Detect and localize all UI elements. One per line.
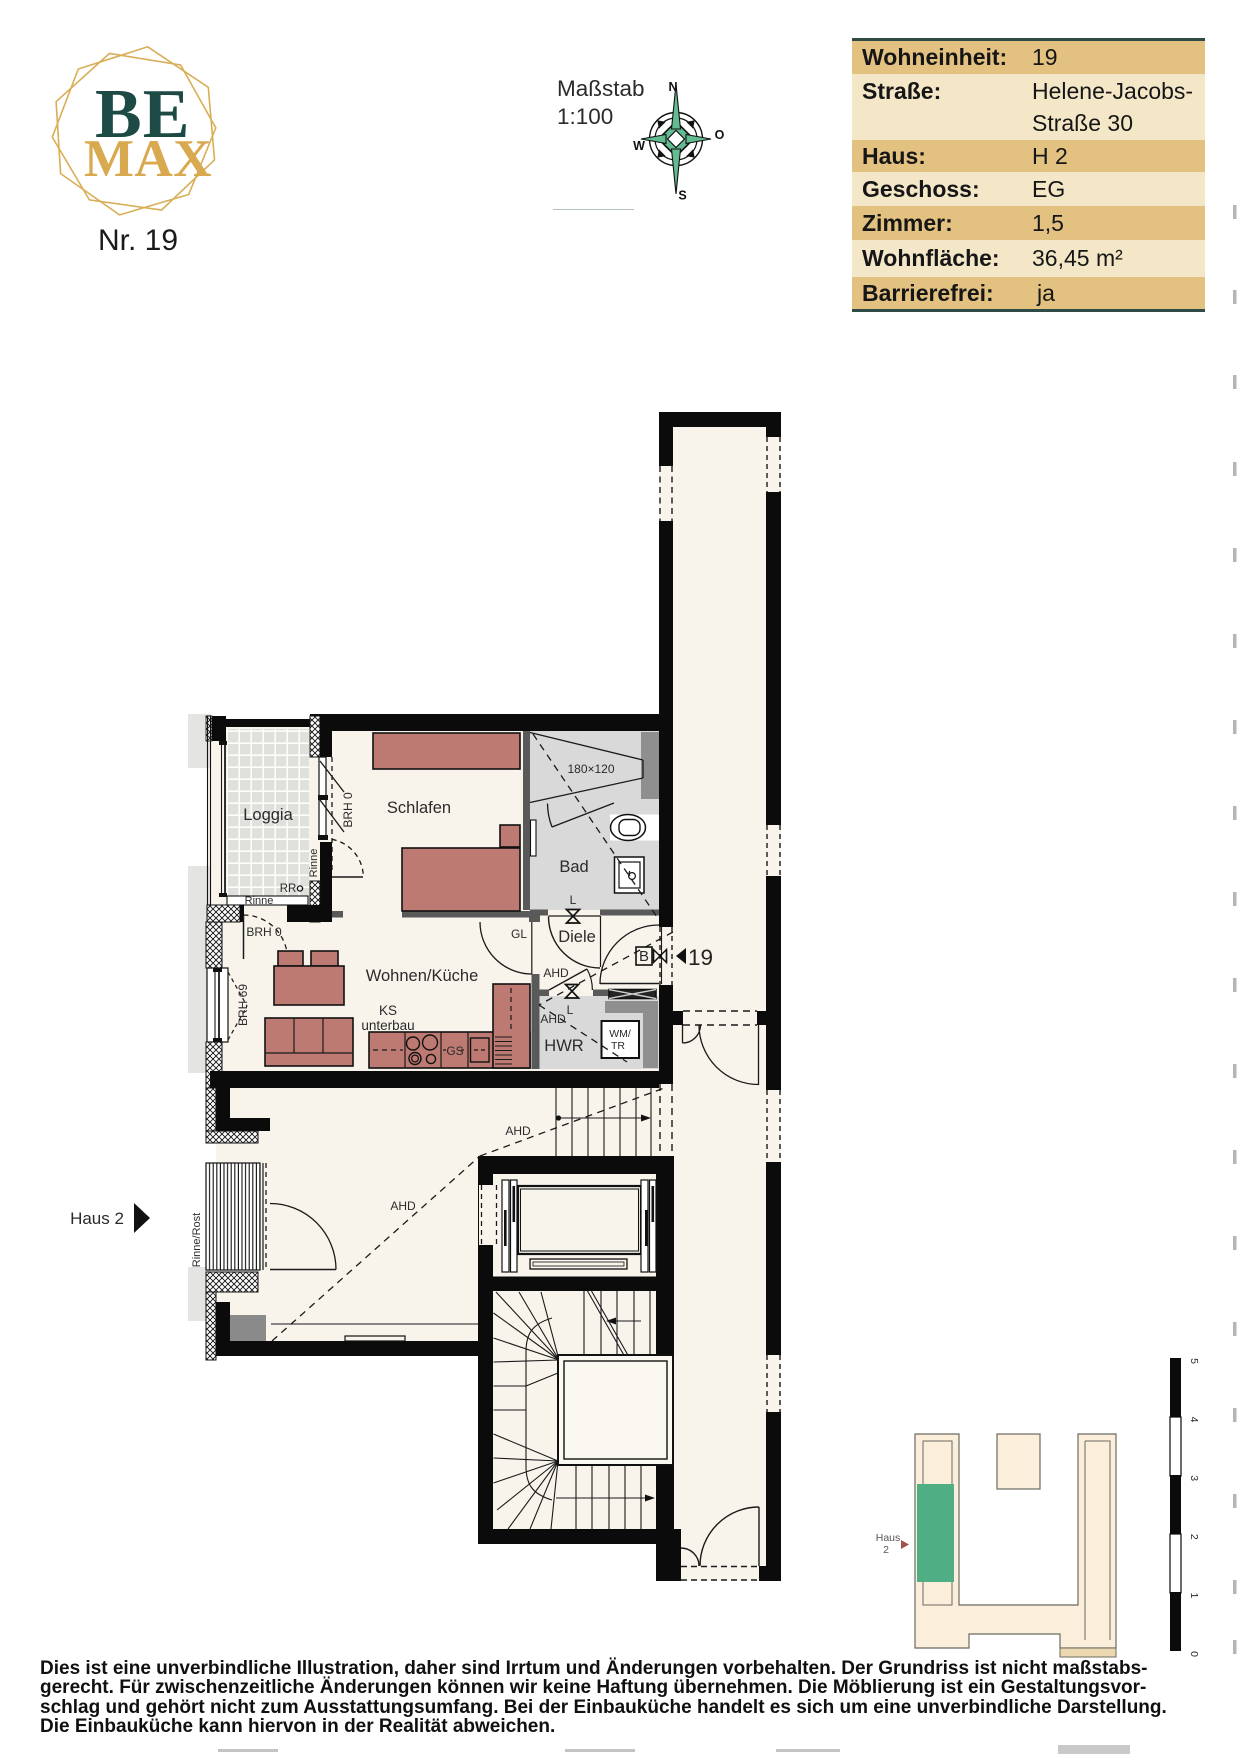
svg-text:19: 19 xyxy=(688,945,713,970)
svg-text:L: L xyxy=(570,893,577,907)
svg-text:GL: GL xyxy=(511,927,527,941)
svg-text:AHD: AHD xyxy=(543,966,569,980)
svg-text:180×120: 180×120 xyxy=(567,762,614,776)
svg-text:TR: TR xyxy=(611,1040,625,1052)
svg-text:HWR: HWR xyxy=(544,1037,583,1055)
svg-text:B: B xyxy=(639,948,649,965)
svg-text:AHD: AHD xyxy=(505,1124,531,1138)
svg-text:Haus: Haus xyxy=(876,1532,901,1544)
svg-text:Haus 2: Haus 2 xyxy=(70,1209,124,1228)
svg-text:Schlafen: Schlafen xyxy=(387,799,451,817)
svg-text:Rinne: Rinne xyxy=(308,849,320,878)
svg-text:Bad: Bad xyxy=(559,858,588,876)
svg-text:WM/: WM/ xyxy=(609,1028,631,1040)
svg-text:4: 4 xyxy=(1188,1417,1200,1423)
svg-text:5: 5 xyxy=(1188,1358,1200,1364)
svg-text:Rinne/Rost: Rinne/Rost xyxy=(191,1213,203,1267)
svg-text:3: 3 xyxy=(1188,1475,1200,1481)
svg-text:KS: KS xyxy=(379,1003,397,1018)
svg-text:unterbau: unterbau xyxy=(361,1018,414,1033)
svg-text:AHD: AHD xyxy=(540,1012,566,1026)
svg-text:Rinne: Rinne xyxy=(245,895,274,907)
svg-text:RR: RR xyxy=(280,883,297,895)
svg-text:1: 1 xyxy=(1188,1592,1200,1598)
svg-text:0: 0 xyxy=(1188,1651,1200,1657)
svg-text:Loggia: Loggia xyxy=(243,806,293,824)
svg-text:Wohnen/Küche: Wohnen/Küche xyxy=(366,967,479,985)
svg-text:BRH 0: BRH 0 xyxy=(246,925,282,939)
svg-text:BRH 0: BRH 0 xyxy=(341,792,355,828)
svg-text:BRH 69: BRH 69 xyxy=(236,984,250,1026)
svg-text:GS: GS xyxy=(446,1044,463,1058)
svg-text:Diele: Diele xyxy=(558,928,596,946)
svg-text:L: L xyxy=(567,1003,574,1017)
svg-text:2: 2 xyxy=(883,1544,889,1556)
svg-text:2: 2 xyxy=(1188,1534,1200,1540)
svg-text:AHD: AHD xyxy=(390,1199,416,1213)
